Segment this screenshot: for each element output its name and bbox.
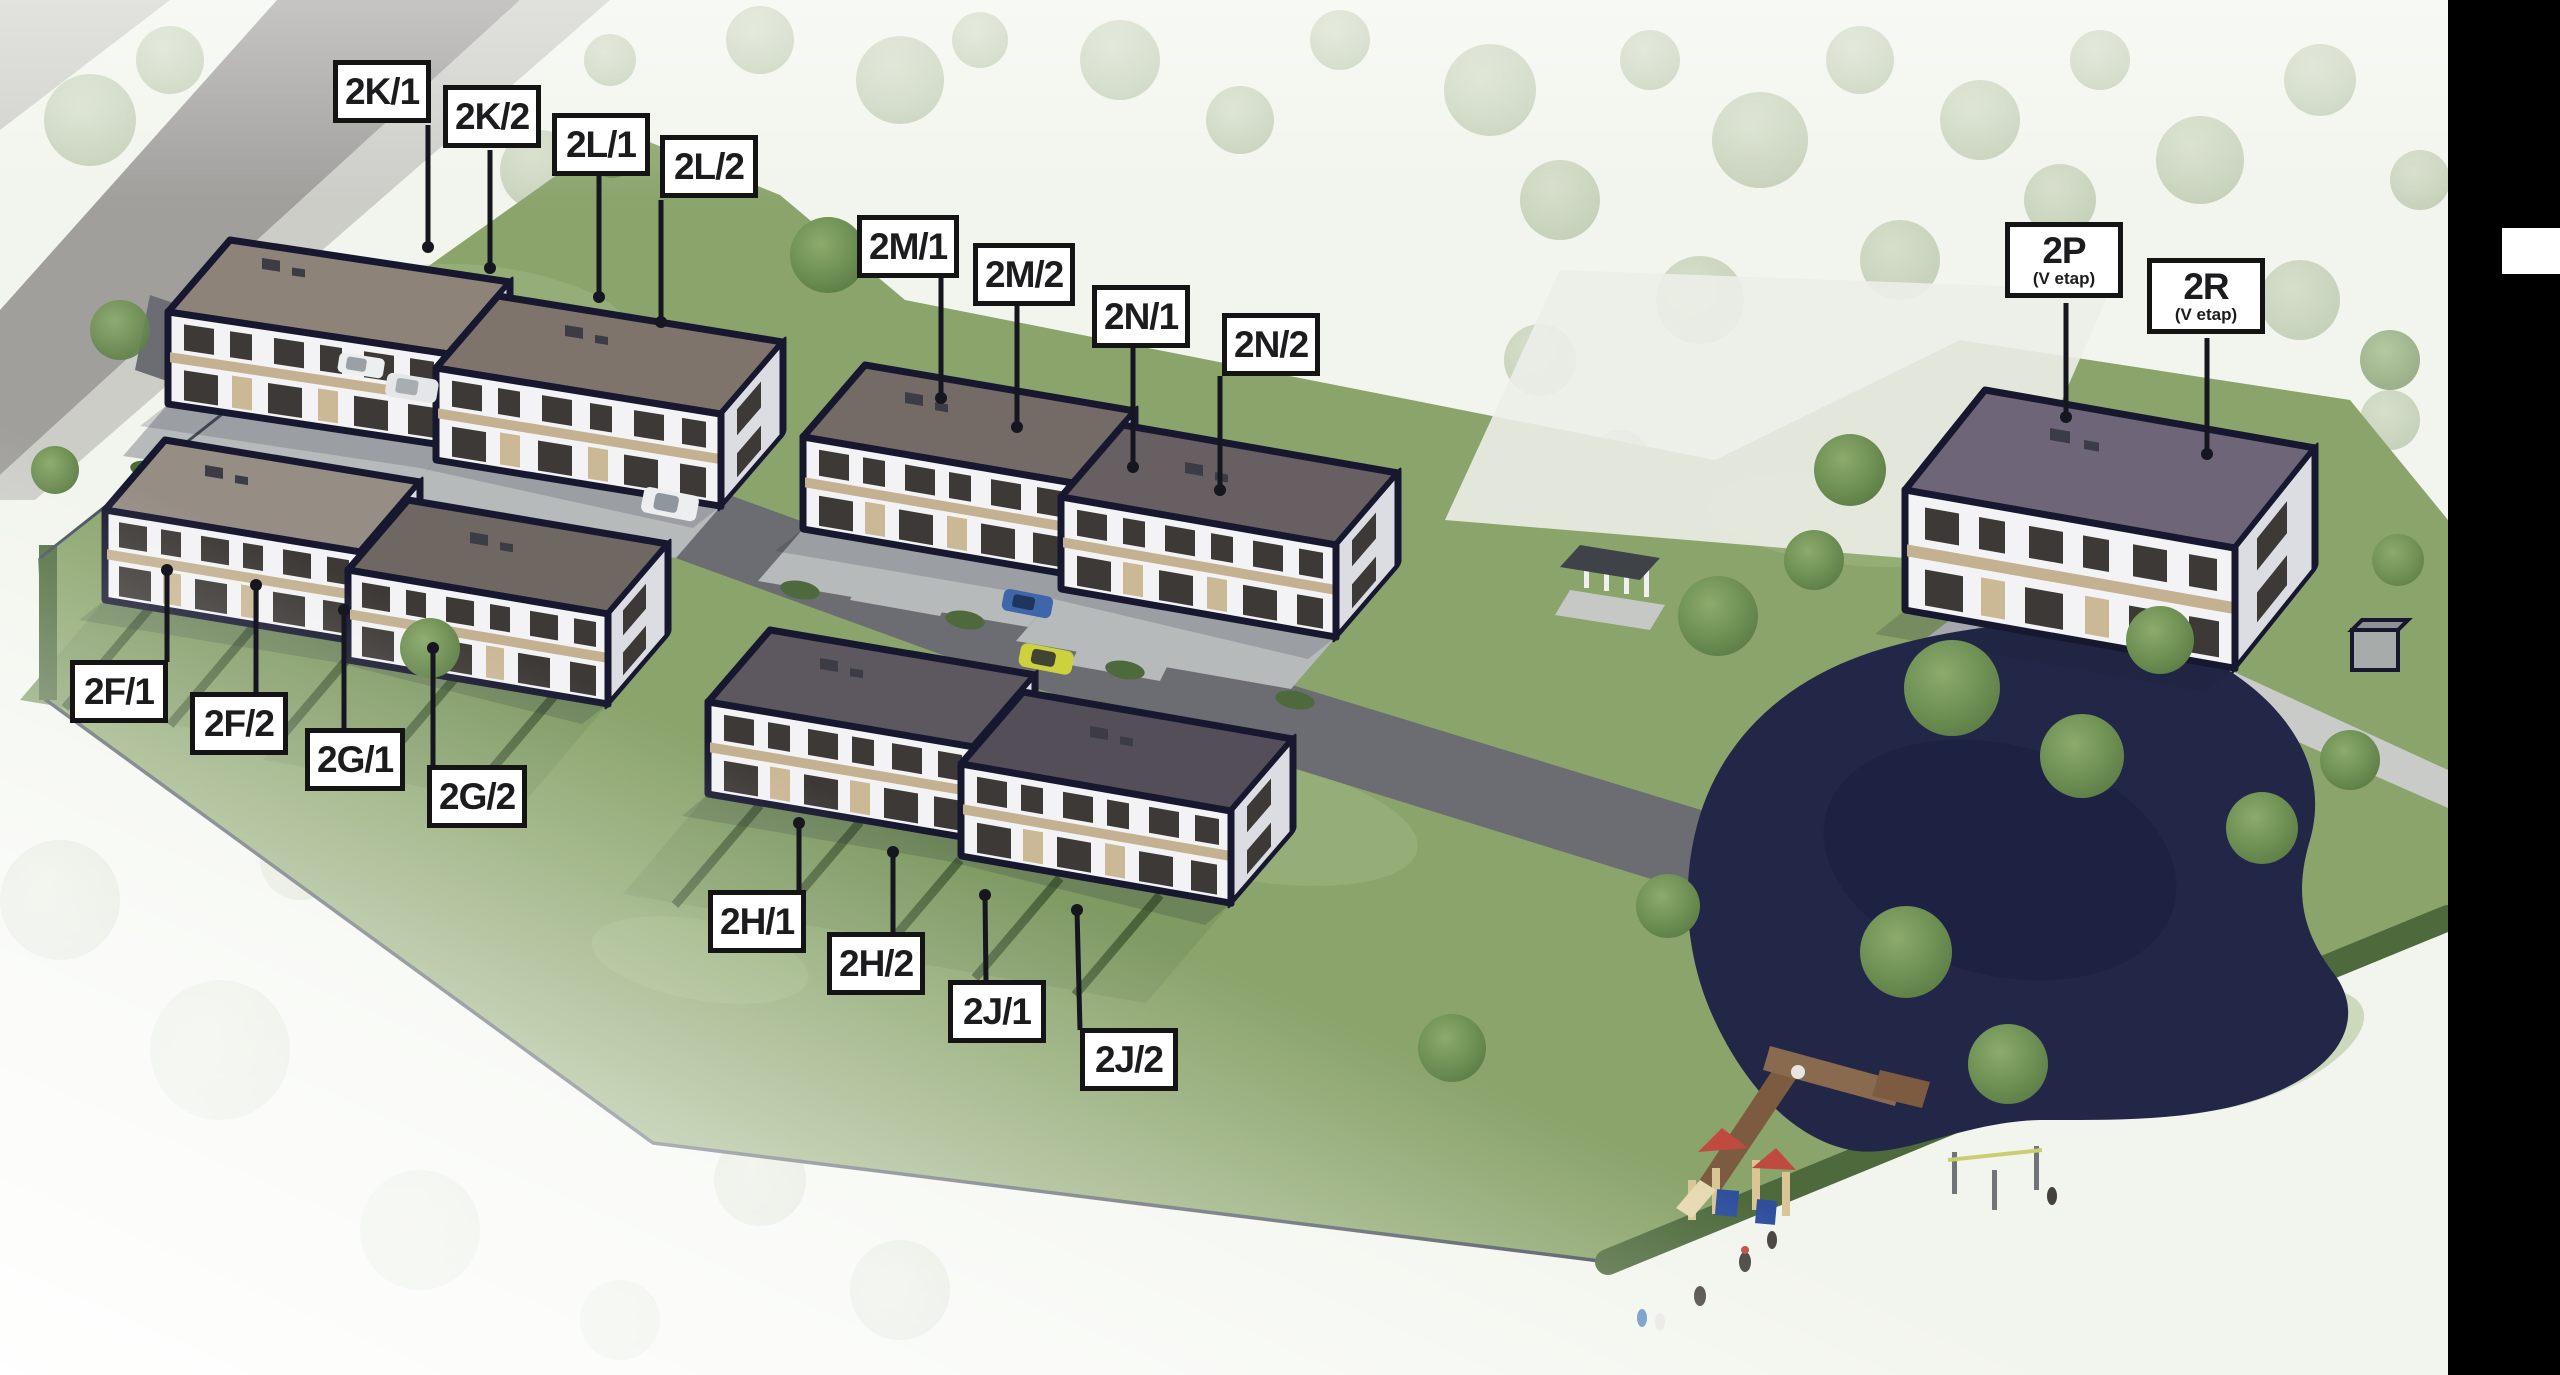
unit-label-2h1[interactable]: 2H/1 [708, 890, 806, 953]
unit-label-stage: (V etap) [2033, 271, 2095, 287]
unit-label-2h2[interactable]: 2H/2 [827, 932, 925, 995]
unit-label-2m2[interactable]: 2M/2 [973, 243, 1075, 306]
unit-label-text: 2F/1 [84, 674, 154, 709]
unit-label-text: 2K/1 [345, 74, 419, 109]
unit-label-text: 2L/1 [566, 127, 636, 162]
site-plan-stage: 2K/1 2K/2 2L/1 2L/2 2M/1 2M/2 2N/1 2N/2 … [0, 0, 2560, 1375]
unit-label-text: 2L/2 [674, 149, 744, 184]
unit-label-2j1[interactable]: 2J/1 [948, 980, 1046, 1043]
right-letterbox-bar [2448, 0, 2560, 1375]
unit-label-text: 2H/2 [839, 946, 913, 981]
unit-label-2r[interactable]: 2R (V etap) [2147, 258, 2265, 334]
unit-label-text: 2P [2042, 233, 2085, 268]
unit-label-text: 2M/2 [985, 257, 1063, 292]
unit-label-2m1[interactable]: 2M/1 [857, 215, 959, 278]
site-rendering [0, 0, 2560, 1375]
unit-label-2f2[interactable]: 2F/2 [190, 692, 288, 755]
unit-label-text: 2H/1 [720, 904, 794, 939]
unit-label-text: 2J/2 [1095, 1042, 1163, 1077]
bar-white-marker [2502, 228, 2560, 274]
unit-label-text: 2F/2 [204, 706, 274, 741]
unit-label-text: 2R [2183, 269, 2228, 304]
unit-label-2f1[interactable]: 2F/1 [70, 660, 168, 723]
unit-label-2k1[interactable]: 2K/1 [333, 60, 431, 123]
unit-label-2l1[interactable]: 2L/1 [552, 113, 650, 176]
unit-label-2n1[interactable]: 2N/1 [1092, 285, 1190, 348]
unit-label-text: 2G/2 [439, 779, 515, 814]
unit-label-2g1[interactable]: 2G/1 [305, 728, 405, 791]
white-wash-top [0, 0, 2560, 1375]
unit-label-2k2[interactable]: 2K/2 [443, 85, 541, 148]
unit-label-2p[interactable]: 2P (V etap) [2005, 222, 2123, 298]
unit-label-text: 2K/2 [455, 99, 529, 134]
unit-label-2g2[interactable]: 2G/2 [427, 765, 527, 828]
unit-label-text: 2J/1 [963, 994, 1031, 1029]
unit-label-2n2[interactable]: 2N/2 [1222, 313, 1320, 376]
unit-label-text: 2N/1 [1104, 299, 1178, 334]
unit-label-text: 2M/1 [869, 229, 947, 264]
unit-label-2l2[interactable]: 2L/2 [660, 135, 758, 198]
unit-label-text: 2G/1 [317, 742, 393, 777]
unit-label-stage: (V etap) [2175, 307, 2237, 323]
unit-label-text: 2N/2 [1234, 327, 1308, 362]
unit-label-2j2[interactable]: 2J/2 [1080, 1028, 1178, 1091]
